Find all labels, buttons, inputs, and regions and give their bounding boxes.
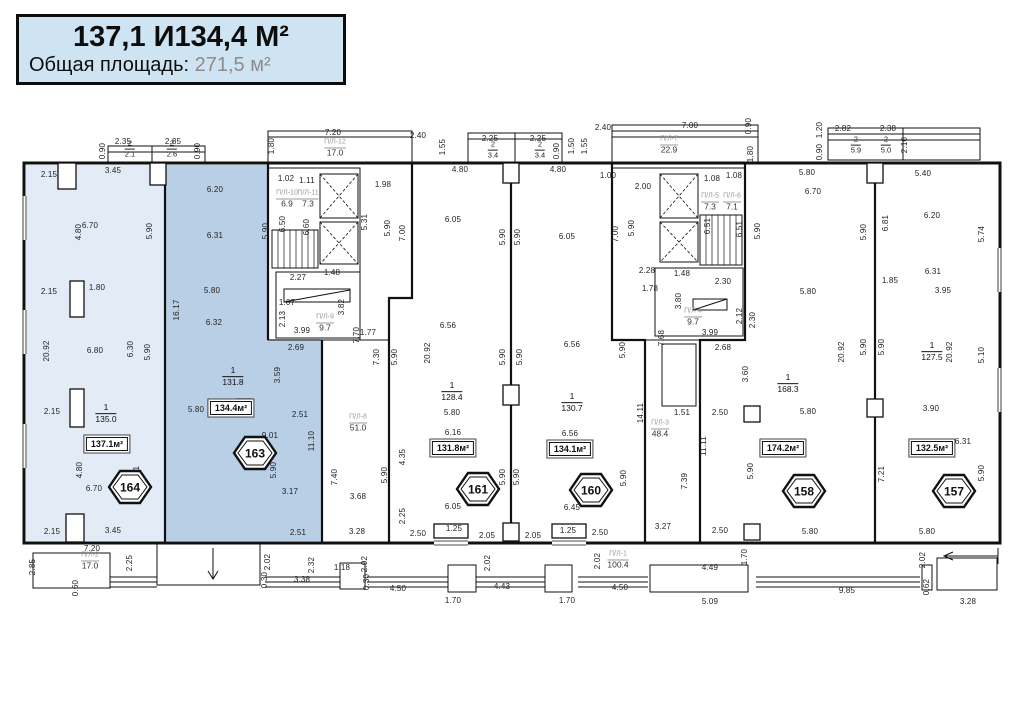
- title-unit-areas: 137,1 И134,4 М²: [25, 21, 337, 54]
- unit-163-fill[interactable]: [166, 165, 321, 541]
- top-balconies: [108, 125, 980, 163]
- unit-164-fill[interactable]: [26, 165, 164, 541]
- elevator-shaft-marks: [320, 174, 698, 264]
- stairwell-walls: [268, 168, 745, 406]
- title-total-area: Общая площадь: 271,5 м²: [25, 54, 337, 76]
- total-area-value: 271,5 м²: [195, 54, 271, 76]
- stair-treads: [278, 215, 736, 268]
- entrance-arrow: [208, 548, 218, 579]
- floorplan-page: 0.902.352.850.901.807.202.401.552.252.25…: [0, 0, 1024, 724]
- direction-arrow: [944, 548, 998, 564]
- bottom-balconies: [33, 543, 997, 592]
- floorplan-drawing: [0, 0, 1024, 724]
- title-block: 137,1 И134,4 М² Общая площадь: 271,5 м²: [16, 14, 346, 85]
- total-area-label: Общая площадь:: [29, 54, 189, 76]
